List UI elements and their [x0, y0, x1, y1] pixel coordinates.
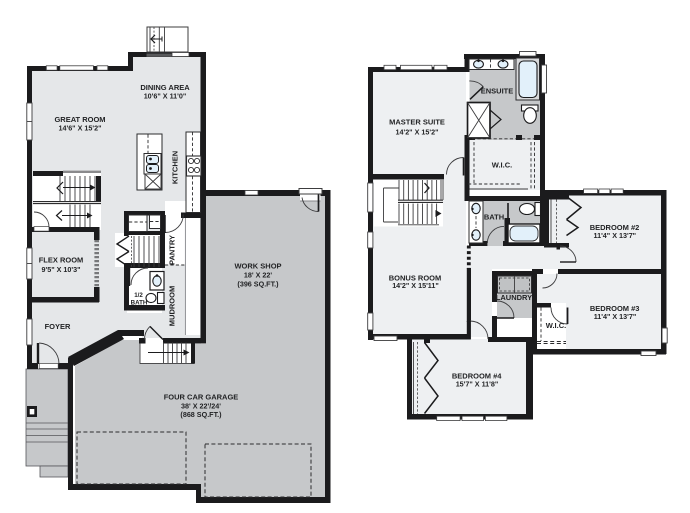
svg-text:(396 SQ.FT.): (396 SQ.FT.)	[237, 280, 279, 289]
svg-text:W.I.C.: W.I.C.	[546, 321, 566, 330]
svg-text:WORK SHOP: WORK SHOP	[234, 262, 281, 271]
svg-text:BATH: BATH	[484, 213, 504, 222]
svg-text:14'2" X 15'11": 14'2" X 15'11"	[392, 281, 439, 290]
svg-text:BATH: BATH	[131, 300, 148, 307]
svg-text:1/2: 1/2	[134, 292, 143, 299]
svg-text:18' X 22': 18' X 22'	[244, 271, 272, 280]
svg-text:14'6" X 15'2": 14'6" X 15'2"	[58, 124, 101, 133]
svg-text:LAUNDRY: LAUNDRY	[496, 293, 532, 302]
svg-text:15'7" X 11'8": 15'7" X 11'8"	[456, 379, 499, 388]
svg-text:(868 SQ.FT.): (868 SQ.FT.)	[180, 410, 222, 419]
svg-text:11'4" X 13'7": 11'4" X 13'7"	[593, 231, 636, 240]
svg-text:11'4" X 13'7": 11'4" X 13'7"	[594, 312, 637, 321]
svg-text:FLEX ROOM: FLEX ROOM	[39, 256, 84, 265]
svg-text:10'6" X 11'0": 10'6" X 11'0"	[144, 91, 187, 100]
svg-text:MASTER SUITE: MASTER SUITE	[389, 118, 445, 127]
svg-text:9'5" X 10'3": 9'5" X 10'3"	[41, 265, 80, 274]
svg-text:W.I.C.: W.I.C.	[492, 160, 512, 169]
svg-text:FOYER: FOYER	[45, 322, 71, 331]
svg-text:14'2" X 15'2": 14'2" X 15'2"	[395, 127, 438, 136]
svg-text:GREAT ROOM: GREAT ROOM	[54, 115, 105, 124]
svg-text:PANTRY: PANTRY	[168, 235, 177, 265]
svg-text:KITCHEN: KITCHEN	[171, 151, 180, 184]
svg-text:MUDROOM: MUDROOM	[168, 286, 177, 326]
svg-text:ENSUITE: ENSUITE	[481, 87, 514, 96]
svg-text:FOUR CAR GARAGE: FOUR CAR GARAGE	[164, 393, 239, 402]
